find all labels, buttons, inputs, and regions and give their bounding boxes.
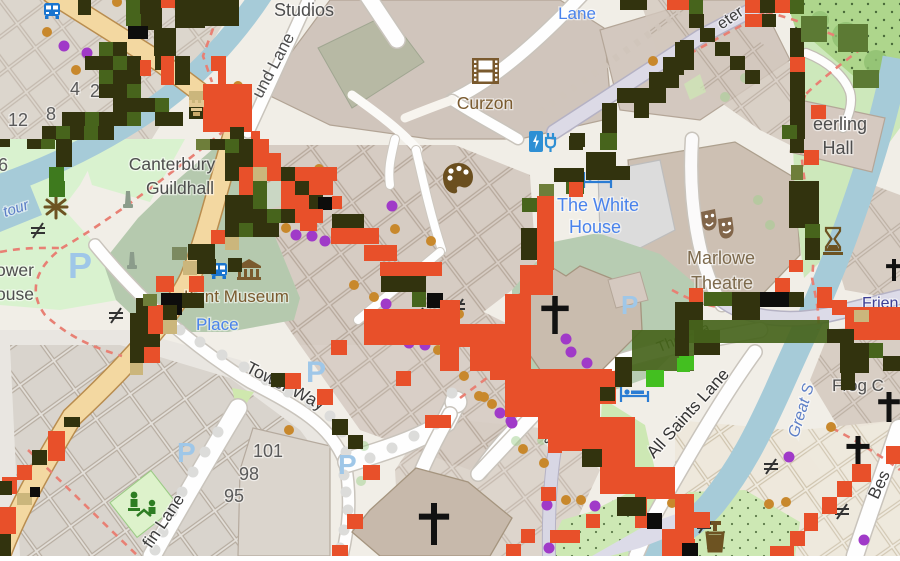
svg-text:Curzon: Curzon: [457, 93, 513, 113]
svg-text:P: P: [621, 290, 638, 320]
svg-text:Canterbury: Canterbury: [129, 154, 216, 174]
svg-text:P: P: [306, 356, 326, 389]
svg-text:House: House: [569, 217, 621, 237]
svg-text:Frog C: Frog C: [832, 376, 884, 395]
svg-text:95: 95: [224, 486, 244, 506]
svg-text:Lane: Lane: [558, 4, 596, 23]
svg-text:Guildhall: Guildhall: [146, 178, 214, 198]
svg-text:P: P: [338, 449, 357, 480]
svg-text:P: P: [68, 245, 92, 286]
svg-text:The White: The White: [557, 195, 639, 215]
svg-text:Marlowe: Marlowe: [687, 248, 755, 268]
svg-text:8: 8: [46, 104, 56, 124]
svg-text:Studios: Studios: [274, 0, 334, 20]
svg-text:101: 101: [253, 441, 283, 461]
svg-text:ouse: ouse: [0, 284, 34, 304]
svg-text:2: 2: [90, 81, 100, 101]
svg-text:4: 4: [70, 79, 80, 99]
svg-text:P: P: [177, 437, 196, 468]
svg-text:Place: Place: [196, 315, 239, 334]
svg-text:Hall: Hall: [822, 138, 853, 158]
svg-text:98: 98: [239, 464, 259, 484]
svg-text:ower: ower: [0, 260, 34, 280]
svg-text:12: 12: [8, 110, 28, 130]
svg-text:6: 6: [0, 155, 8, 175]
